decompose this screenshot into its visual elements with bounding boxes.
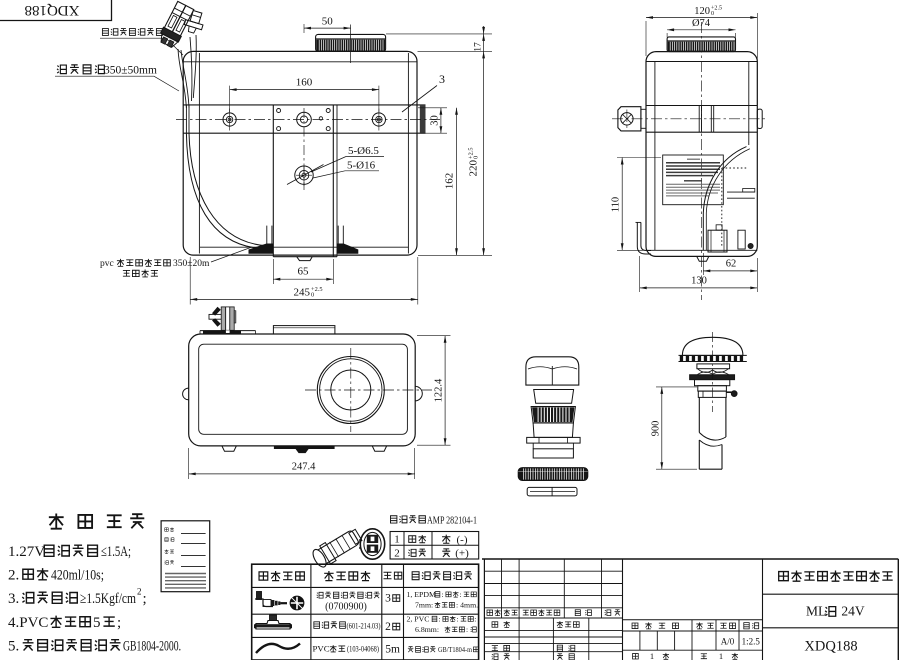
svg-text:(0700900): (0700900) — [325, 602, 367, 613]
svg-text:130: 130 — [691, 276, 707, 287]
svg-text:122.4: 122.4 — [434, 378, 445, 402]
svg-text:;: ; — [143, 591, 147, 607]
svg-text:220: 220 — [468, 160, 480, 177]
svg-text::: : — [477, 590, 479, 599]
svg-text:350±20m: 350±20m — [173, 259, 210, 269]
svg-text::: : — [474, 615, 476, 624]
svg-text:(601-214.03): (601-214.03) — [347, 620, 381, 630]
svg-text:5: 5 — [93, 615, 101, 631]
svg-text:420ml/10s;: 420ml/10s; — [51, 568, 104, 584]
svg-text::: : — [442, 590, 444, 599]
svg-text:PVC: PVC — [313, 644, 330, 654]
svg-text:245: 245 — [294, 286, 311, 298]
svg-text:3.: 3. — [8, 591, 19, 607]
svg-text:1.27V: 1.27V — [8, 544, 45, 560]
svg-text:17: 17 — [474, 42, 484, 52]
svg-text:2.: 2. — [8, 568, 19, 584]
svg-text::: : — [457, 615, 459, 624]
svg-text:1: 1 — [650, 651, 654, 660]
svg-text:5-Ø6.5: 5-Ø6.5 — [348, 145, 379, 157]
svg-text::: : — [460, 590, 462, 599]
svg-text:160: 160 — [296, 77, 313, 89]
svg-text:GB1804-2000.: GB1804-2000. — [123, 639, 181, 655]
svg-text:Ø74: Ø74 — [692, 18, 711, 29]
svg-text:;: ; — [117, 615, 121, 631]
svg-text:(+): (+) — [455, 548, 469, 560]
svg-text:2: 2 — [137, 587, 142, 597]
svg-text:5-Ø16: 5-Ø16 — [347, 160, 376, 172]
svg-text:50: 50 — [322, 16, 334, 28]
svg-text:3: 3 — [385, 593, 391, 605]
svg-text:(-): (-) — [457, 534, 468, 546]
svg-text:A/0: A/0 — [721, 637, 735, 647]
svg-text:350±50mm: 350±50mm — [104, 65, 157, 77]
svg-text:900: 900 — [651, 421, 662, 437]
svg-text:0: 0 — [311, 292, 314, 299]
svg-text:24V: 24V — [841, 604, 865, 619]
svg-text:1, EPDM: 1, EPDM — [407, 590, 437, 599]
svg-text:XDQ188: XDQ188 — [25, 2, 80, 18]
svg-text:2: 2 — [385, 621, 391, 633]
svg-text:5m: 5m — [385, 644, 400, 656]
svg-text:1: 1 — [394, 534, 400, 546]
svg-text:30: 30 — [430, 115, 441, 126]
svg-text:6.8mm:: 6.8mm: — [415, 625, 439, 634]
svg-text:1:2.5: 1:2.5 — [742, 637, 761, 647]
svg-text:247.4: 247.4 — [292, 462, 316, 473]
svg-text:≤1.5A;: ≤1.5A; — [101, 544, 131, 560]
svg-text:110: 110 — [611, 197, 622, 212]
svg-text:62: 62 — [726, 259, 737, 270]
svg-text:7mm:: 7mm: — [415, 601, 433, 610]
svg-text:2, PVC: 2, PVC — [407, 615, 430, 624]
svg-text:65: 65 — [298, 266, 310, 278]
svg-text:120: 120 — [694, 6, 710, 17]
svg-text:5.: 5. — [8, 639, 19, 655]
svg-text:pvc: pvc — [100, 259, 114, 269]
svg-text:ML: ML — [806, 604, 826, 619]
svg-text:GB/T1804-m: GB/T1804-m — [438, 645, 472, 654]
svg-text:4.PVC: 4.PVC — [8, 615, 48, 631]
svg-text:162: 162 — [444, 173, 456, 190]
svg-text:1: 1 — [719, 651, 723, 660]
svg-text:0: 0 — [473, 156, 480, 159]
svg-text:: 4mm.: : 4mm. — [456, 601, 478, 610]
svg-text:0: 0 — [711, 11, 714, 17]
svg-text::: : — [466, 625, 468, 634]
svg-text:(103-04068): (103-04068) — [347, 644, 379, 654]
svg-text:3: 3 — [439, 72, 445, 86]
svg-text::: : — [439, 615, 441, 624]
svg-text:2: 2 — [394, 547, 400, 559]
svg-text:≥1.5Kgf/cm: ≥1.5Kgf/cm — [80, 591, 136, 607]
svg-text:XDQ188: XDQ188 — [804, 639, 857, 655]
svg-text:AMP 282104-1: AMP 282104-1 — [427, 516, 477, 527]
